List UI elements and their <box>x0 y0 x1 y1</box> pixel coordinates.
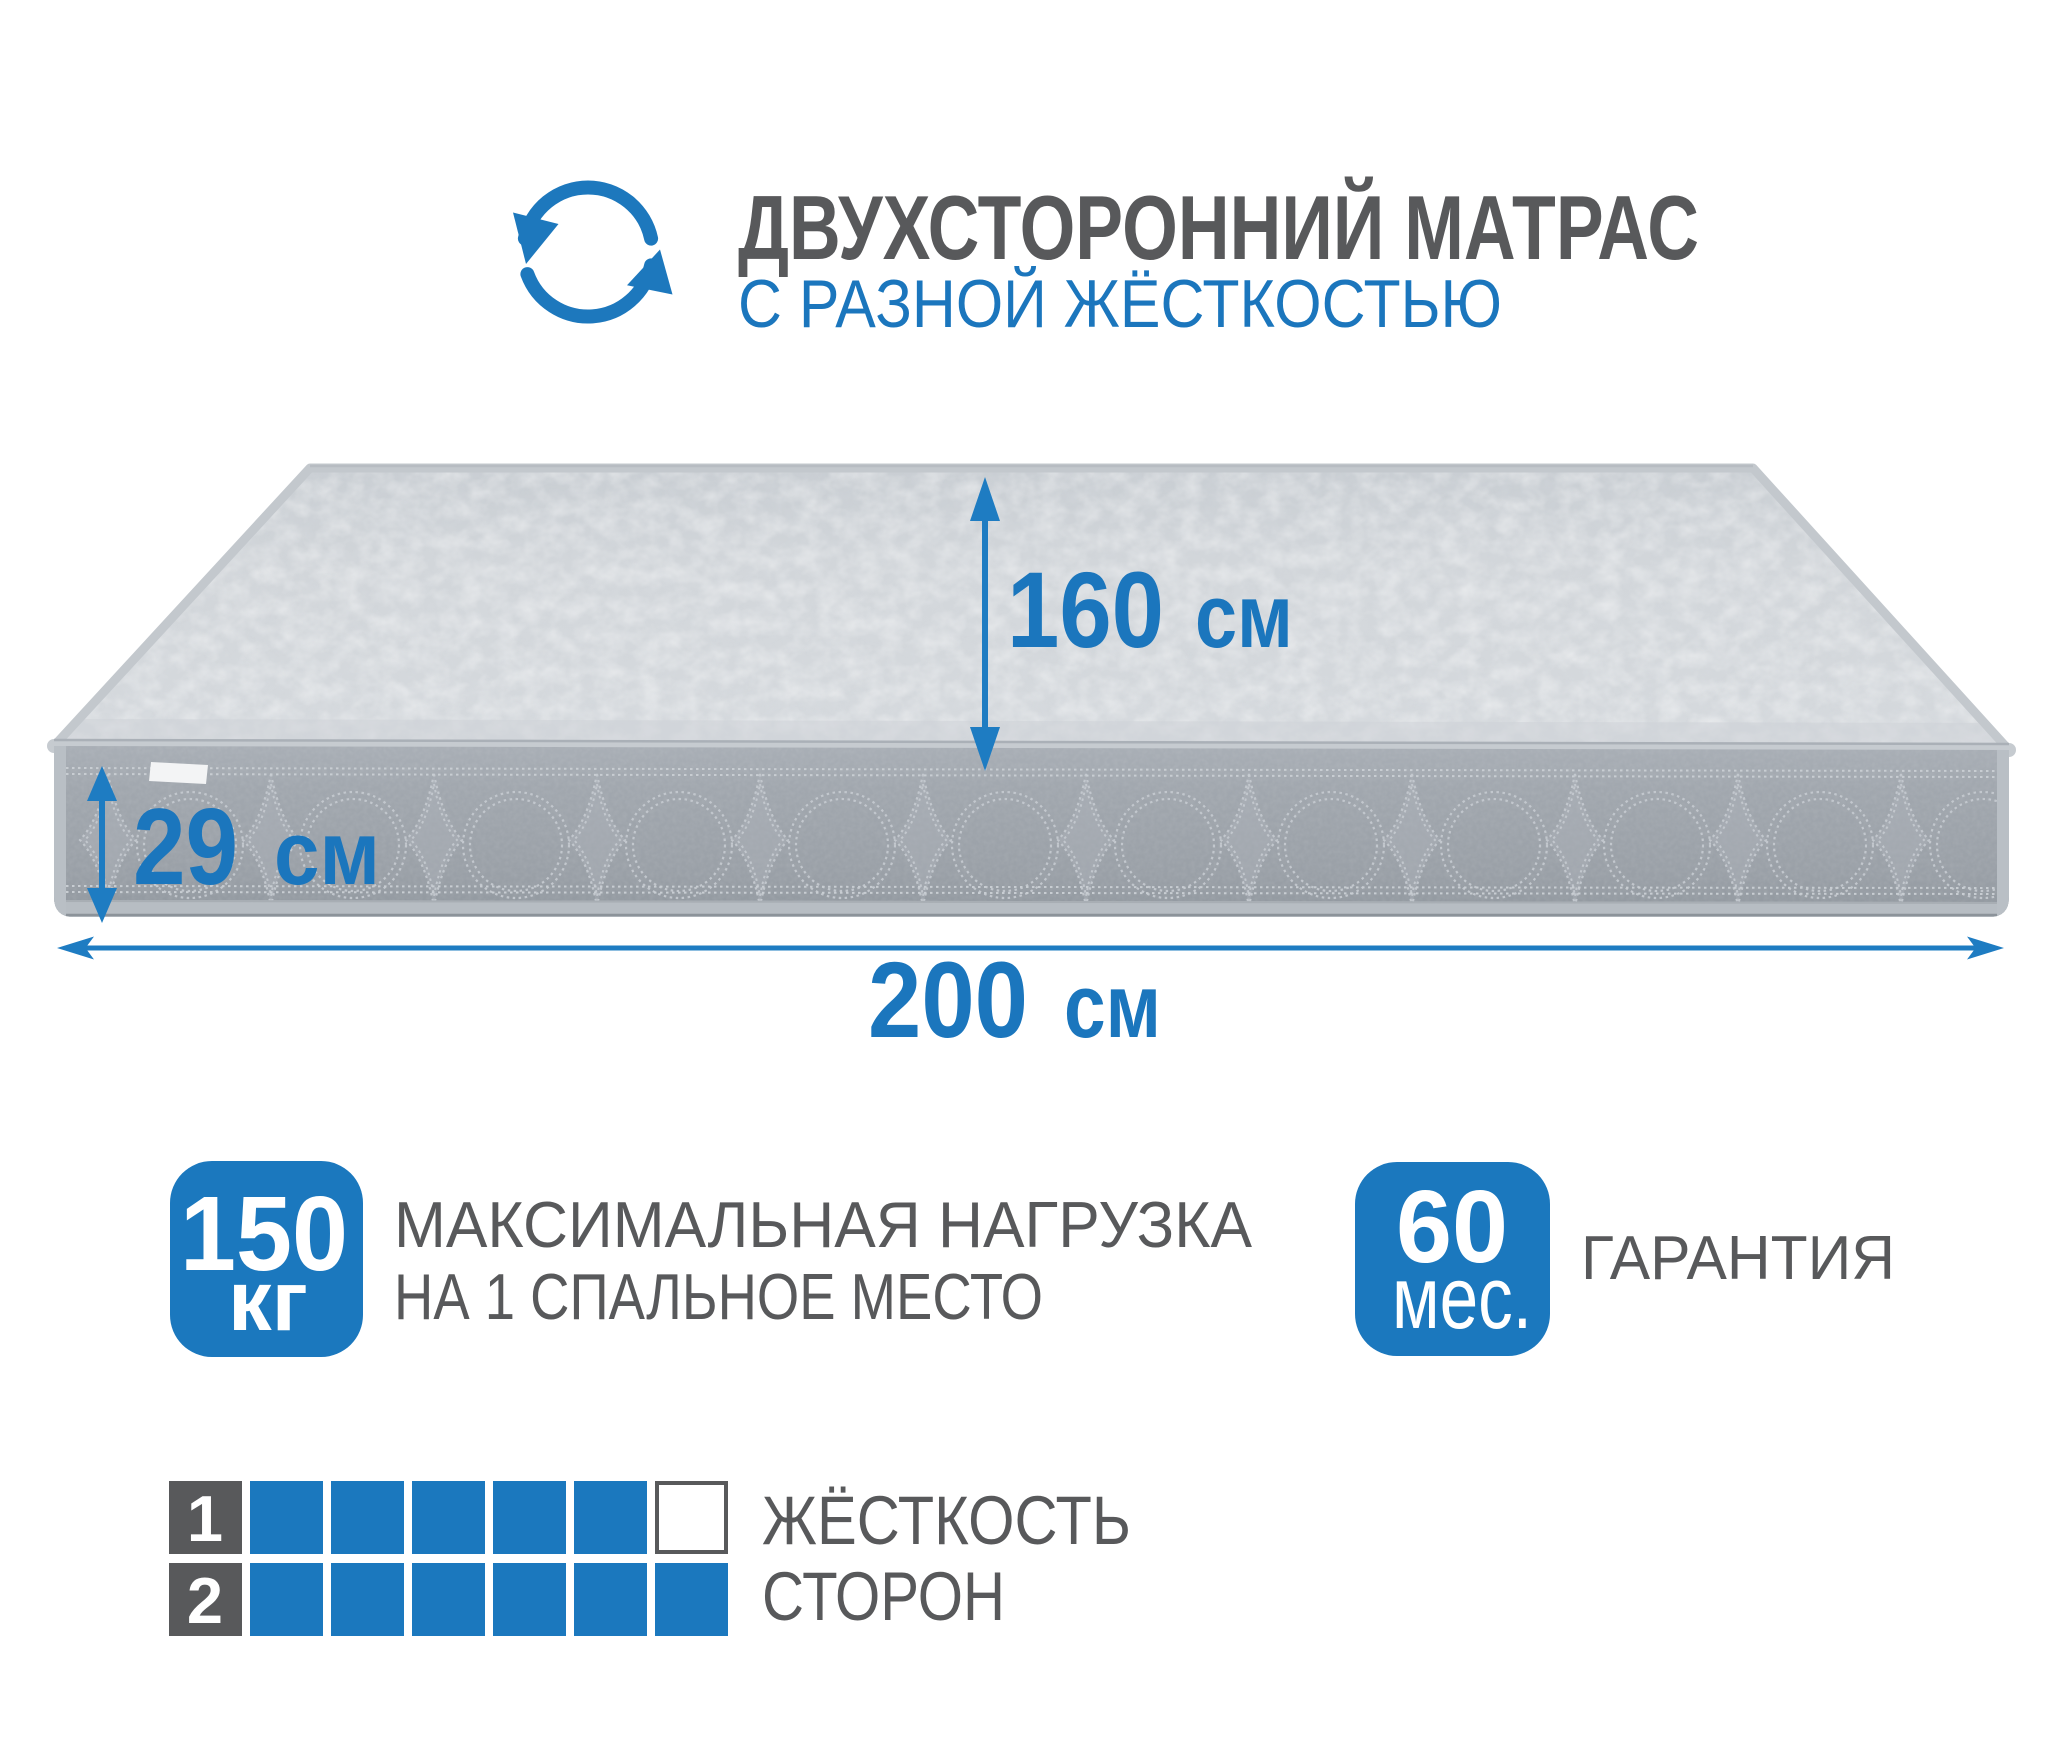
svg-text:200: 200 <box>868 939 1028 1060</box>
svg-text:кг: кг <box>228 1254 308 1349</box>
svg-text:ЖЁСТКОСТЬ: ЖЁСТКОСТЬ <box>762 1482 1131 1559</box>
svg-text:160: 160 <box>1007 549 1164 670</box>
svg-text:МАКСИМАЛЬНАЯ НАГРУЗКА: МАКСИМАЛЬНАЯ НАГРУЗКА <box>394 1188 1253 1261</box>
svg-text:СТОРОН: СТОРОН <box>762 1558 1005 1635</box>
svg-text:НА 1 СПАЛЬНОЕ МЕСТО: НА 1 СПАЛЬНОЕ МЕСТО <box>394 1260 1043 1333</box>
svg-text:29: 29 <box>133 786 238 908</box>
svg-text:см: см <box>274 804 380 904</box>
svg-text:2: 2 <box>187 1564 223 1637</box>
svg-text:см: см <box>1064 957 1161 1057</box>
svg-text:см: см <box>1195 567 1293 667</box>
svg-text:1: 1 <box>187 1482 223 1555</box>
svg-text:ГАРАНТИЯ: ГАРАНТИЯ <box>1581 1224 1895 1293</box>
svg-text:мес.: мес. <box>1392 1248 1532 1347</box>
svg-text:С РАЗНОЙ ЖЁСТКОСТЬЮ: С РАЗНОЙ ЖЁСТКОСТЬЮ <box>738 265 1502 342</box>
svg-text:ДВУХСТОРОННИЙ МАТРАС: ДВУХСТОРОННИЙ МАТРАС <box>738 176 1699 279</box>
